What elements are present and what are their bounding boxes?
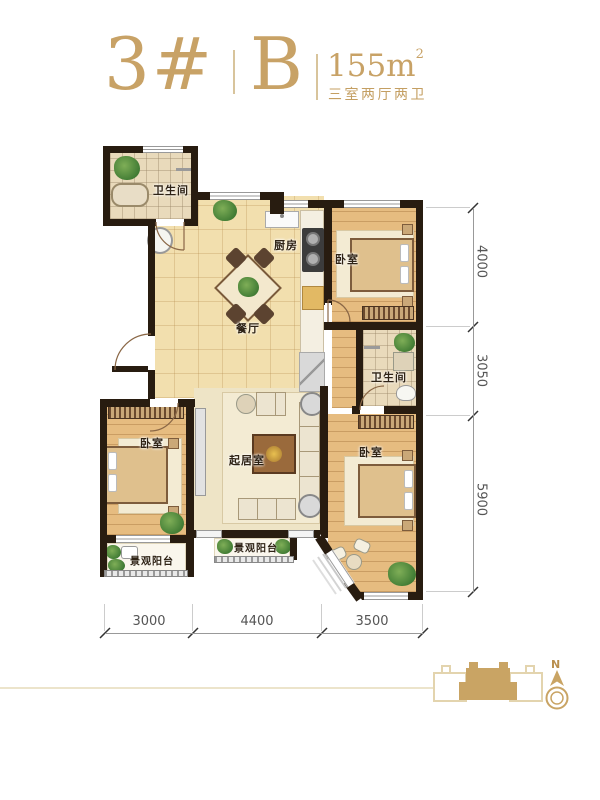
wardrobe-icon bbox=[362, 306, 414, 320]
block-number: 3# bbox=[104, 28, 214, 100]
room-label-bathroom2: 卫生间 bbox=[371, 369, 407, 385]
nightstand-icon bbox=[168, 438, 179, 449]
balcony-door bbox=[196, 530, 222, 538]
keyplan-detail bbox=[441, 665, 451, 674]
side-table-icon bbox=[346, 554, 362, 570]
door-opening bbox=[325, 303, 331, 322]
window bbox=[364, 592, 408, 600]
faucet-icon bbox=[280, 214, 284, 218]
entry-door-opening bbox=[148, 336, 155, 370]
dim-right-4000: 4000 bbox=[474, 242, 489, 282]
door-leaf bbox=[112, 366, 153, 372]
corridor-floor bbox=[332, 330, 356, 408]
area-superscript: 2 bbox=[416, 47, 424, 62]
toilet-icon bbox=[396, 385, 416, 401]
balcony-door bbox=[288, 530, 314, 538]
sofa-icon bbox=[238, 498, 296, 520]
wall bbox=[324, 200, 332, 305]
dim-right-3050: 3050 bbox=[474, 351, 489, 391]
area-value: 155m bbox=[327, 48, 416, 84]
wall bbox=[103, 146, 110, 226]
bathtub-icon bbox=[111, 183, 149, 207]
footer-divider bbox=[0, 687, 433, 689]
wall bbox=[320, 386, 328, 538]
wardrobe-icon bbox=[108, 406, 184, 419]
area-text: 155m2 bbox=[327, 48, 424, 82]
compass-north-label: N bbox=[551, 658, 560, 671]
window bbox=[344, 200, 400, 208]
room-label-bedroom1: 卧室 bbox=[335, 251, 359, 267]
wall bbox=[416, 200, 423, 600]
pillow-icon bbox=[108, 474, 117, 492]
extension-line bbox=[426, 591, 470, 592]
plant-icon bbox=[213, 200, 237, 221]
nightstand-icon bbox=[402, 224, 413, 235]
dim-bottom-4400: 4400 bbox=[237, 614, 277, 629]
wall bbox=[148, 219, 155, 336]
floor-lamp-icon bbox=[298, 494, 322, 518]
room-label-bedroom3: 卧室 bbox=[359, 444, 383, 460]
nightstand-icon bbox=[402, 520, 413, 531]
plant-icon bbox=[160, 512, 184, 534]
plant-icon bbox=[238, 277, 259, 297]
dim-bottom-3000: 3000 bbox=[129, 614, 169, 629]
extension-line bbox=[426, 326, 470, 327]
extension-line bbox=[426, 207, 470, 208]
keyplan-detail bbox=[525, 665, 535, 674]
balcony-railing bbox=[104, 570, 188, 577]
room-label-dining: 餐厅 bbox=[236, 320, 260, 336]
food-prep-icon bbox=[302, 286, 324, 310]
window bbox=[143, 146, 183, 153]
room-label-balcony1: 景观阳台 bbox=[130, 553, 174, 568]
plant-icon bbox=[114, 156, 140, 180]
window bbox=[210, 192, 260, 200]
window bbox=[284, 200, 308, 208]
room-label-living: 起居室 bbox=[229, 452, 265, 468]
wall bbox=[191, 146, 198, 226]
plant-icon bbox=[388, 562, 416, 586]
extension-line bbox=[422, 604, 423, 631]
room-label-bedroom2: 卧室 bbox=[140, 435, 164, 451]
dim-right-5900: 5900 bbox=[474, 480, 489, 520]
wardrobe-icon bbox=[358, 415, 414, 429]
pillow-icon bbox=[404, 492, 413, 510]
room-label-balcony2: 景观阳台 bbox=[234, 540, 278, 555]
room-label-bathroom1: 卫生间 bbox=[153, 182, 189, 198]
keyplan-unit-highlight bbox=[459, 682, 517, 700]
room-label-kitchen: 厨房 bbox=[274, 237, 298, 253]
wall bbox=[324, 322, 423, 330]
layout-description: 三室两厅两卫 bbox=[328, 84, 427, 104]
burner-icon bbox=[306, 232, 320, 246]
towel-bar-icon bbox=[364, 346, 380, 349]
nightstand-icon bbox=[402, 450, 413, 461]
extension-line bbox=[321, 604, 322, 631]
burner-icon bbox=[306, 252, 320, 266]
dim-bottom-3500: 3500 bbox=[352, 614, 392, 629]
plant-icon bbox=[394, 333, 415, 352]
pillow-icon bbox=[108, 452, 117, 470]
pillow-icon bbox=[400, 266, 409, 284]
balcony-railing bbox=[214, 556, 294, 563]
side-table-icon bbox=[236, 394, 256, 414]
plant-icon bbox=[217, 539, 233, 554]
extension-line bbox=[426, 415, 470, 416]
door-opening bbox=[156, 219, 184, 226]
wall bbox=[100, 399, 107, 577]
wall bbox=[186, 399, 194, 577]
unit-letter: B bbox=[250, 28, 305, 100]
floor-plan-page: 3# B 155m2 三室两厅两卫 bbox=[0, 0, 600, 800]
title-divider-2 bbox=[316, 54, 318, 100]
extension-line bbox=[192, 604, 193, 631]
armchair-icon bbox=[256, 392, 286, 416]
extension-line bbox=[104, 604, 105, 631]
dimension-line-bottom bbox=[105, 633, 423, 634]
sofa-icon bbox=[299, 402, 320, 502]
window bbox=[116, 535, 170, 543]
plant-icon bbox=[106, 545, 121, 559]
door-opening bbox=[150, 399, 178, 407]
flowers-icon bbox=[266, 446, 282, 462]
pillow-icon bbox=[404, 470, 413, 488]
title-divider-1 bbox=[233, 50, 235, 94]
door-opening bbox=[360, 406, 384, 414]
pillow-icon bbox=[400, 244, 409, 262]
wall bbox=[356, 330, 363, 414]
tv-stand-icon bbox=[195, 408, 206, 496]
towel-bar-icon bbox=[176, 168, 192, 171]
wall bbox=[100, 399, 195, 407]
